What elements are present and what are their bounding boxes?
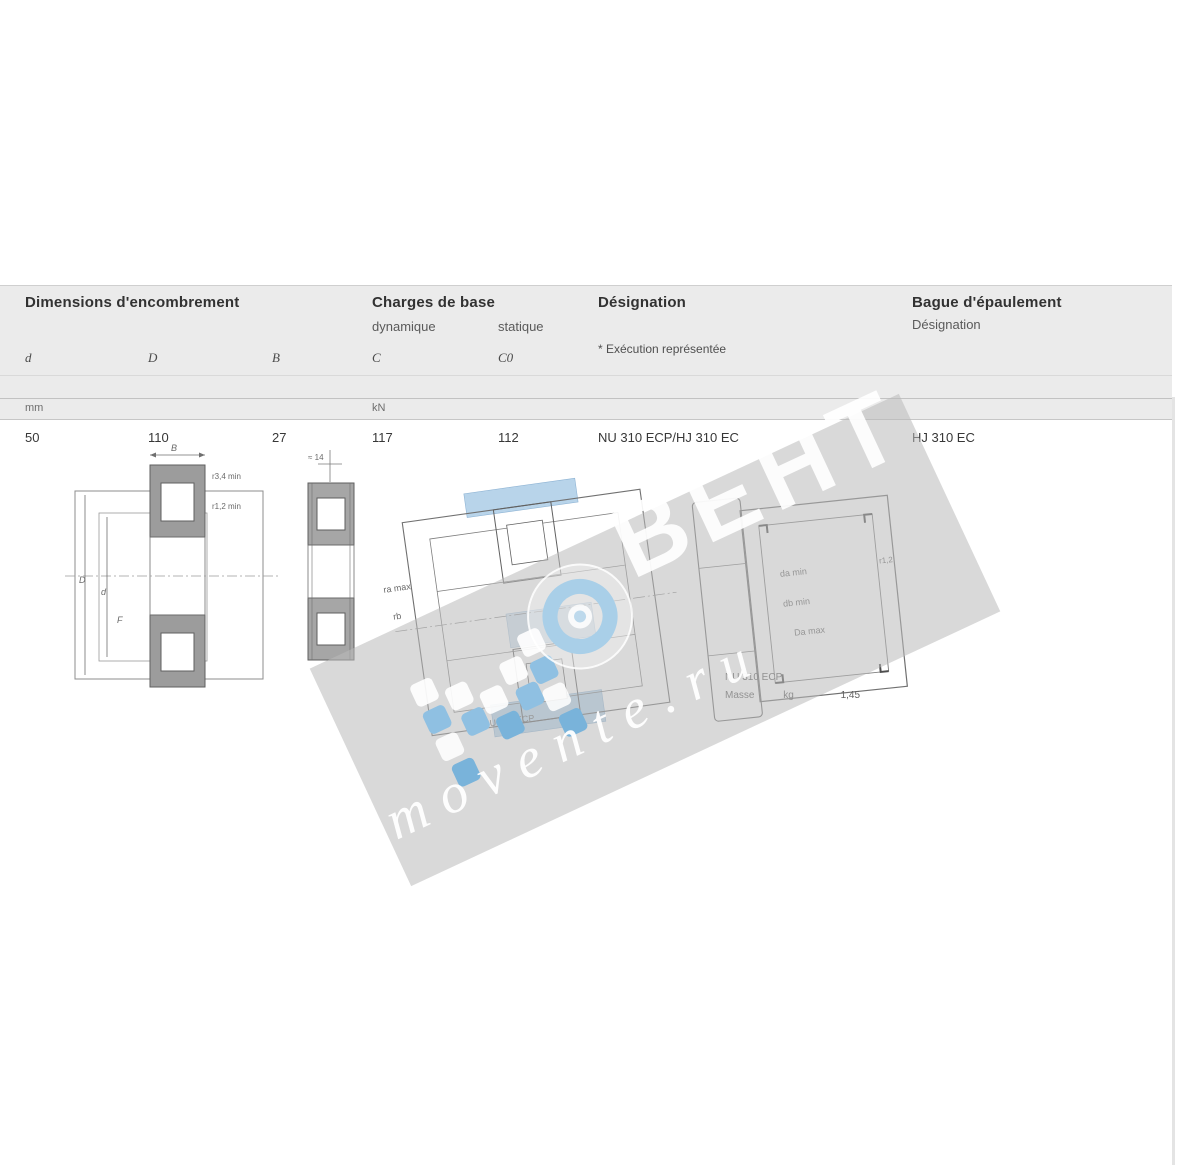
col-C0: C0 xyxy=(498,350,513,366)
label-r12: r1,2 min xyxy=(212,502,241,511)
svg-text:B: B xyxy=(171,443,177,453)
col-C: C xyxy=(372,350,381,366)
cell-C0: 112 xyxy=(498,430,519,445)
unit-kN: kN xyxy=(372,402,385,414)
label-a14: ≈ 14 xyxy=(308,453,324,462)
dimensions-group-title: Dimensions d'encombrement xyxy=(25,294,239,311)
mass-value: 1,45 xyxy=(841,690,860,701)
cell-C: 117 xyxy=(372,430,393,445)
units-row: mm kN xyxy=(0,399,1172,420)
col-B: B xyxy=(272,350,280,366)
label-F: F xyxy=(117,615,123,625)
header-divider xyxy=(0,375,1172,376)
label-ra-max: ra max xyxy=(383,581,412,595)
col-D: D xyxy=(148,350,157,366)
table-header: Dimensions d'encombrement Charges de bas… xyxy=(0,285,1172,399)
label-rb: rb xyxy=(393,611,402,622)
label-r34: r3,4 min xyxy=(212,472,241,481)
figure-cross-section: B r3,4 min r1,2 min D d F xyxy=(55,443,285,688)
unit-mm: mm xyxy=(25,402,43,414)
designation-footnote: * Exécution représentée xyxy=(598,342,726,356)
page-edge-line xyxy=(1172,397,1175,1165)
label-d: d xyxy=(101,587,107,597)
col-d: d xyxy=(25,350,32,366)
cross-section-drawing: B r3,4 min r1,2 min D d F xyxy=(55,443,285,688)
cell-d: 50 xyxy=(25,430,39,445)
ring-subtitle: Désignation xyxy=(912,317,981,332)
ring-title: Bague d'épaulement xyxy=(912,294,1062,311)
bearing-table: Dimensions d'encombrement Charges de bas… xyxy=(0,285,1172,456)
loads-group-title: Charges de base xyxy=(372,294,495,311)
loads-dynamic-label: dynamique xyxy=(372,319,436,334)
label-D: D xyxy=(79,575,86,585)
catalog-page: { "table": { "dimensions_title": "Dimens… xyxy=(0,0,1200,1165)
designation-title: Désignation xyxy=(598,294,686,311)
loads-static-label: statique xyxy=(498,319,544,334)
